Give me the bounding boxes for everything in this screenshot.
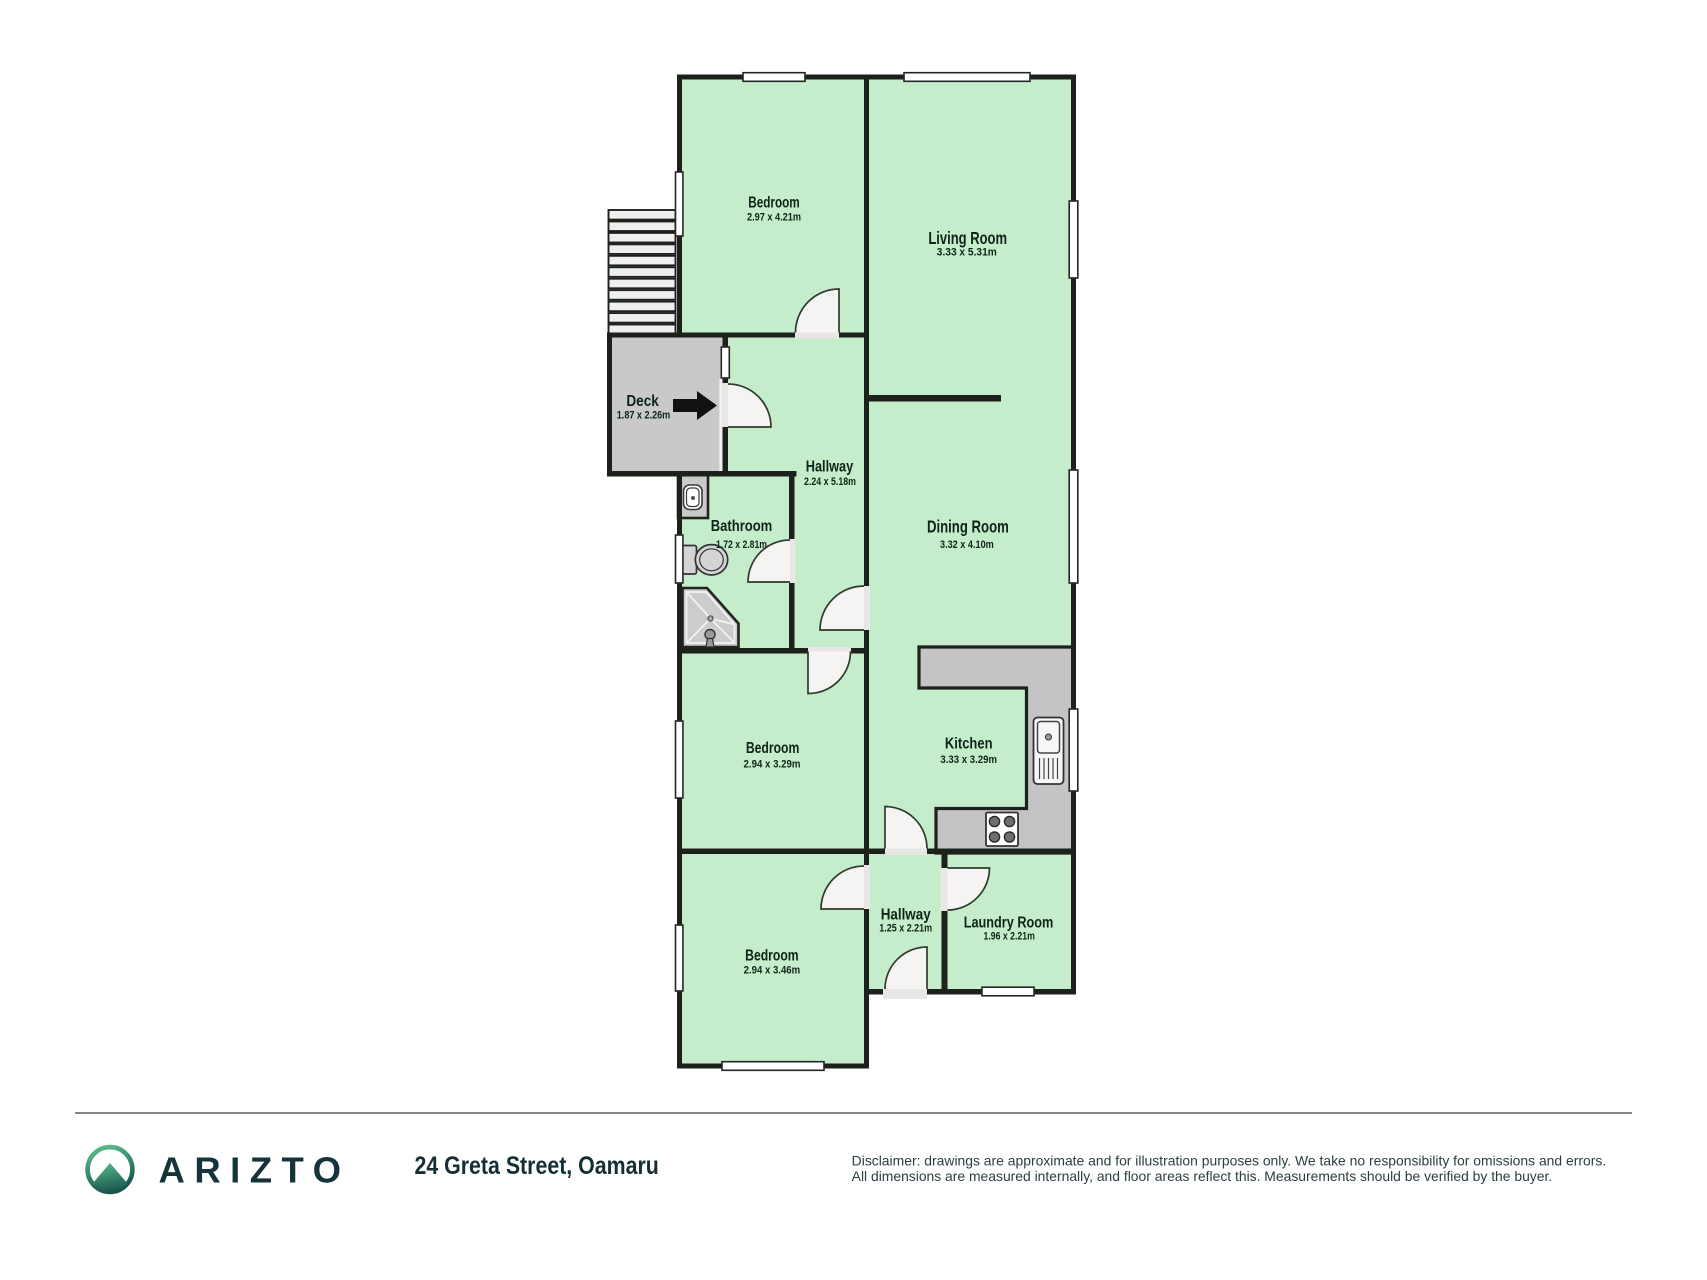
svg-text:2.94 x 3.46m: 2.94 x 3.46m: [744, 965, 801, 977]
svg-text:Laundry Room: Laundry Room: [964, 915, 1054, 932]
svg-text:ARIZTO: ARIZTO: [159, 1149, 342, 1190]
svg-text:1.25 x 2.21m: 1.25 x 2.21m: [879, 923, 932, 935]
svg-text:Hallway: Hallway: [881, 907, 931, 924]
svg-text:Deck: Deck: [626, 393, 659, 410]
svg-text:Bedroom: Bedroom: [748, 195, 800, 212]
svg-text:2.24 x 5.18m: 2.24 x 5.18m: [804, 476, 856, 488]
svg-text:3.33 x 5.31m: 3.33 x 5.31m: [937, 247, 997, 259]
svg-text:2.97 x 4.21m: 2.97 x 4.21m: [747, 212, 801, 224]
svg-text:Bedroom: Bedroom: [746, 740, 800, 757]
svg-text:Bedroom: Bedroom: [745, 948, 799, 965]
svg-text:All dimensions are measured in: All dimensions are measured internally, …: [852, 1169, 1552, 1184]
svg-text:Living Room: Living Room: [928, 228, 1007, 248]
svg-text:3.32 x 4.10m: 3.32 x 4.10m: [940, 539, 994, 551]
svg-text:1.96 x 2.21m: 1.96 x 2.21m: [984, 930, 1036, 942]
svg-text:Bathroom: Bathroom: [711, 518, 773, 535]
svg-text:2.94 x 3.29m: 2.94 x 3.29m: [744, 759, 801, 771]
svg-text:Kitchen: Kitchen: [945, 736, 993, 753]
svg-text:Hallway: Hallway: [806, 459, 854, 476]
svg-text:24 Greta Street, Oamaru: 24 Greta Street, Oamaru: [415, 1152, 659, 1180]
svg-text:Dining Room: Dining Room: [927, 517, 1009, 537]
svg-text:1.72 x 2.81m: 1.72 x 2.81m: [716, 539, 767, 551]
svg-text:Disclaimer: drawings are appro: Disclaimer: drawings are approximate and…: [852, 1154, 1606, 1169]
svg-text:1.87 x 2.26m: 1.87 x 2.26m: [617, 409, 671, 421]
svg-text:3.33 x 3.29m: 3.33 x 3.29m: [940, 754, 997, 766]
